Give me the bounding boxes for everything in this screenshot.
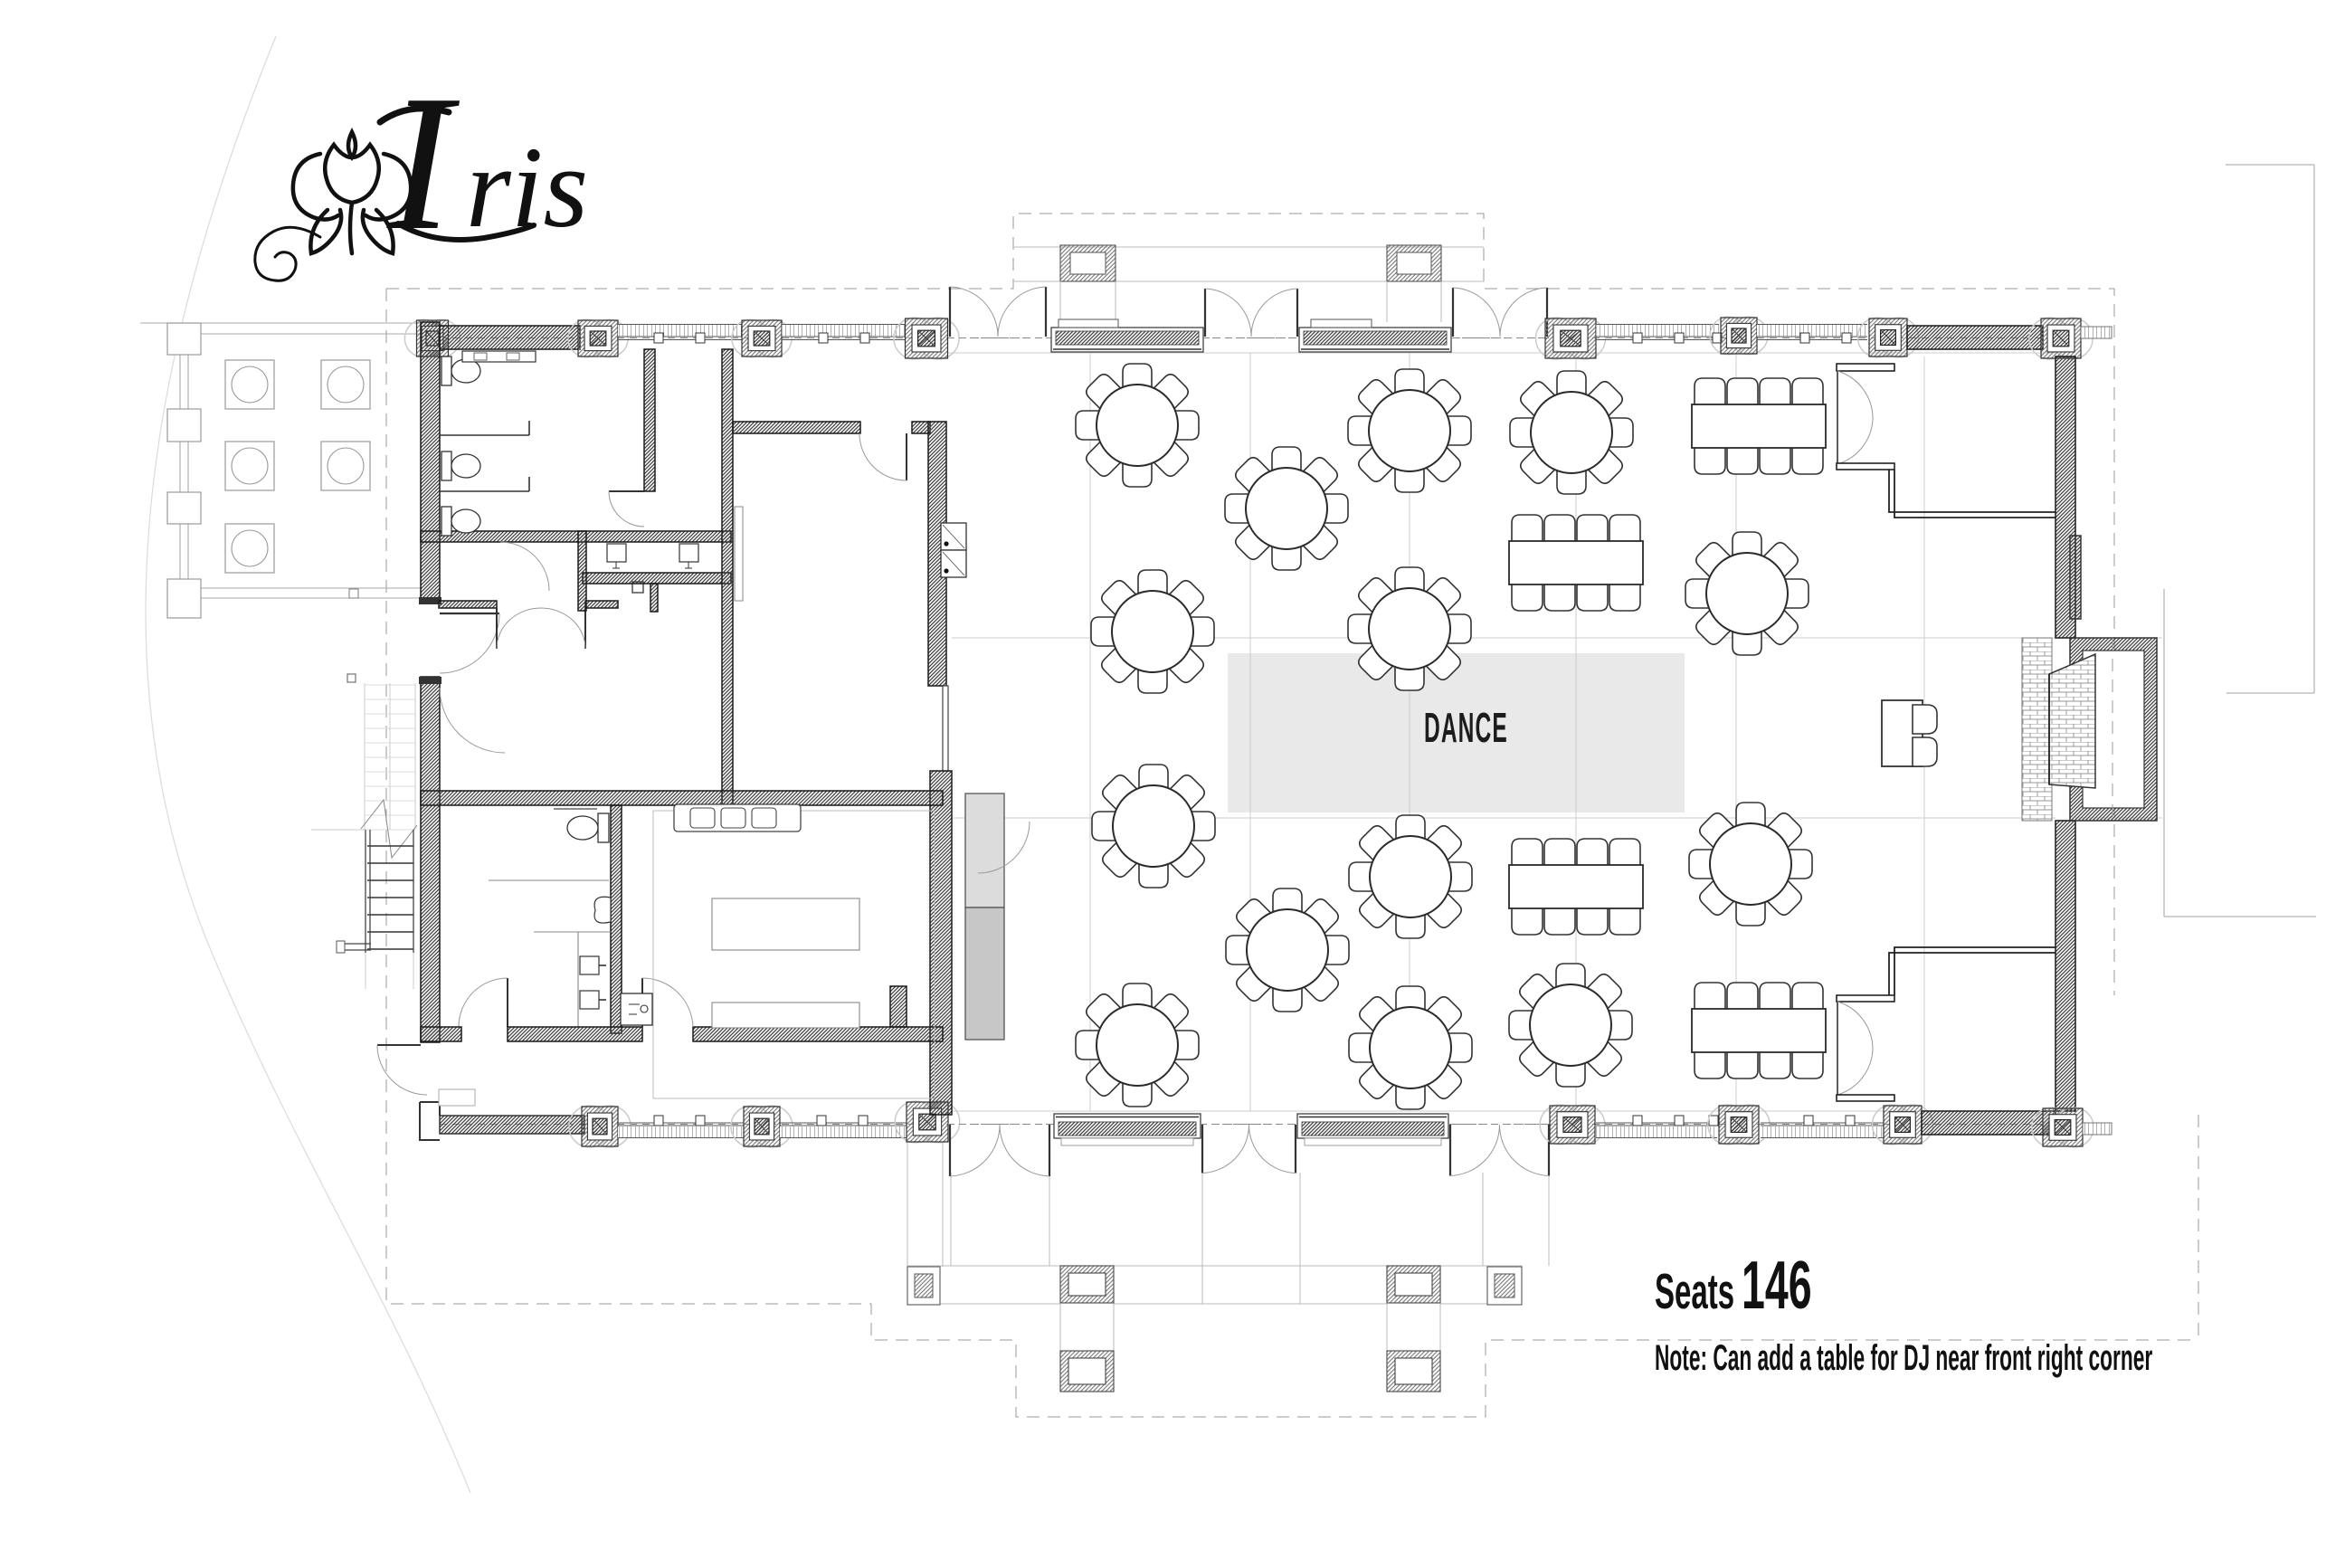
svg-text:ris: ris (466, 123, 588, 252)
svg-text:146: 146 (1742, 1249, 1812, 1324)
svg-text:Seats: Seats (1655, 1263, 1734, 1319)
svg-text:I: I (386, 54, 460, 271)
svg-text:DANCE: DANCE (1424, 705, 1508, 751)
svg-text:Note: Can add a table for DJ n: Note: Can add a table for DJ near front … (1655, 1337, 2152, 1377)
